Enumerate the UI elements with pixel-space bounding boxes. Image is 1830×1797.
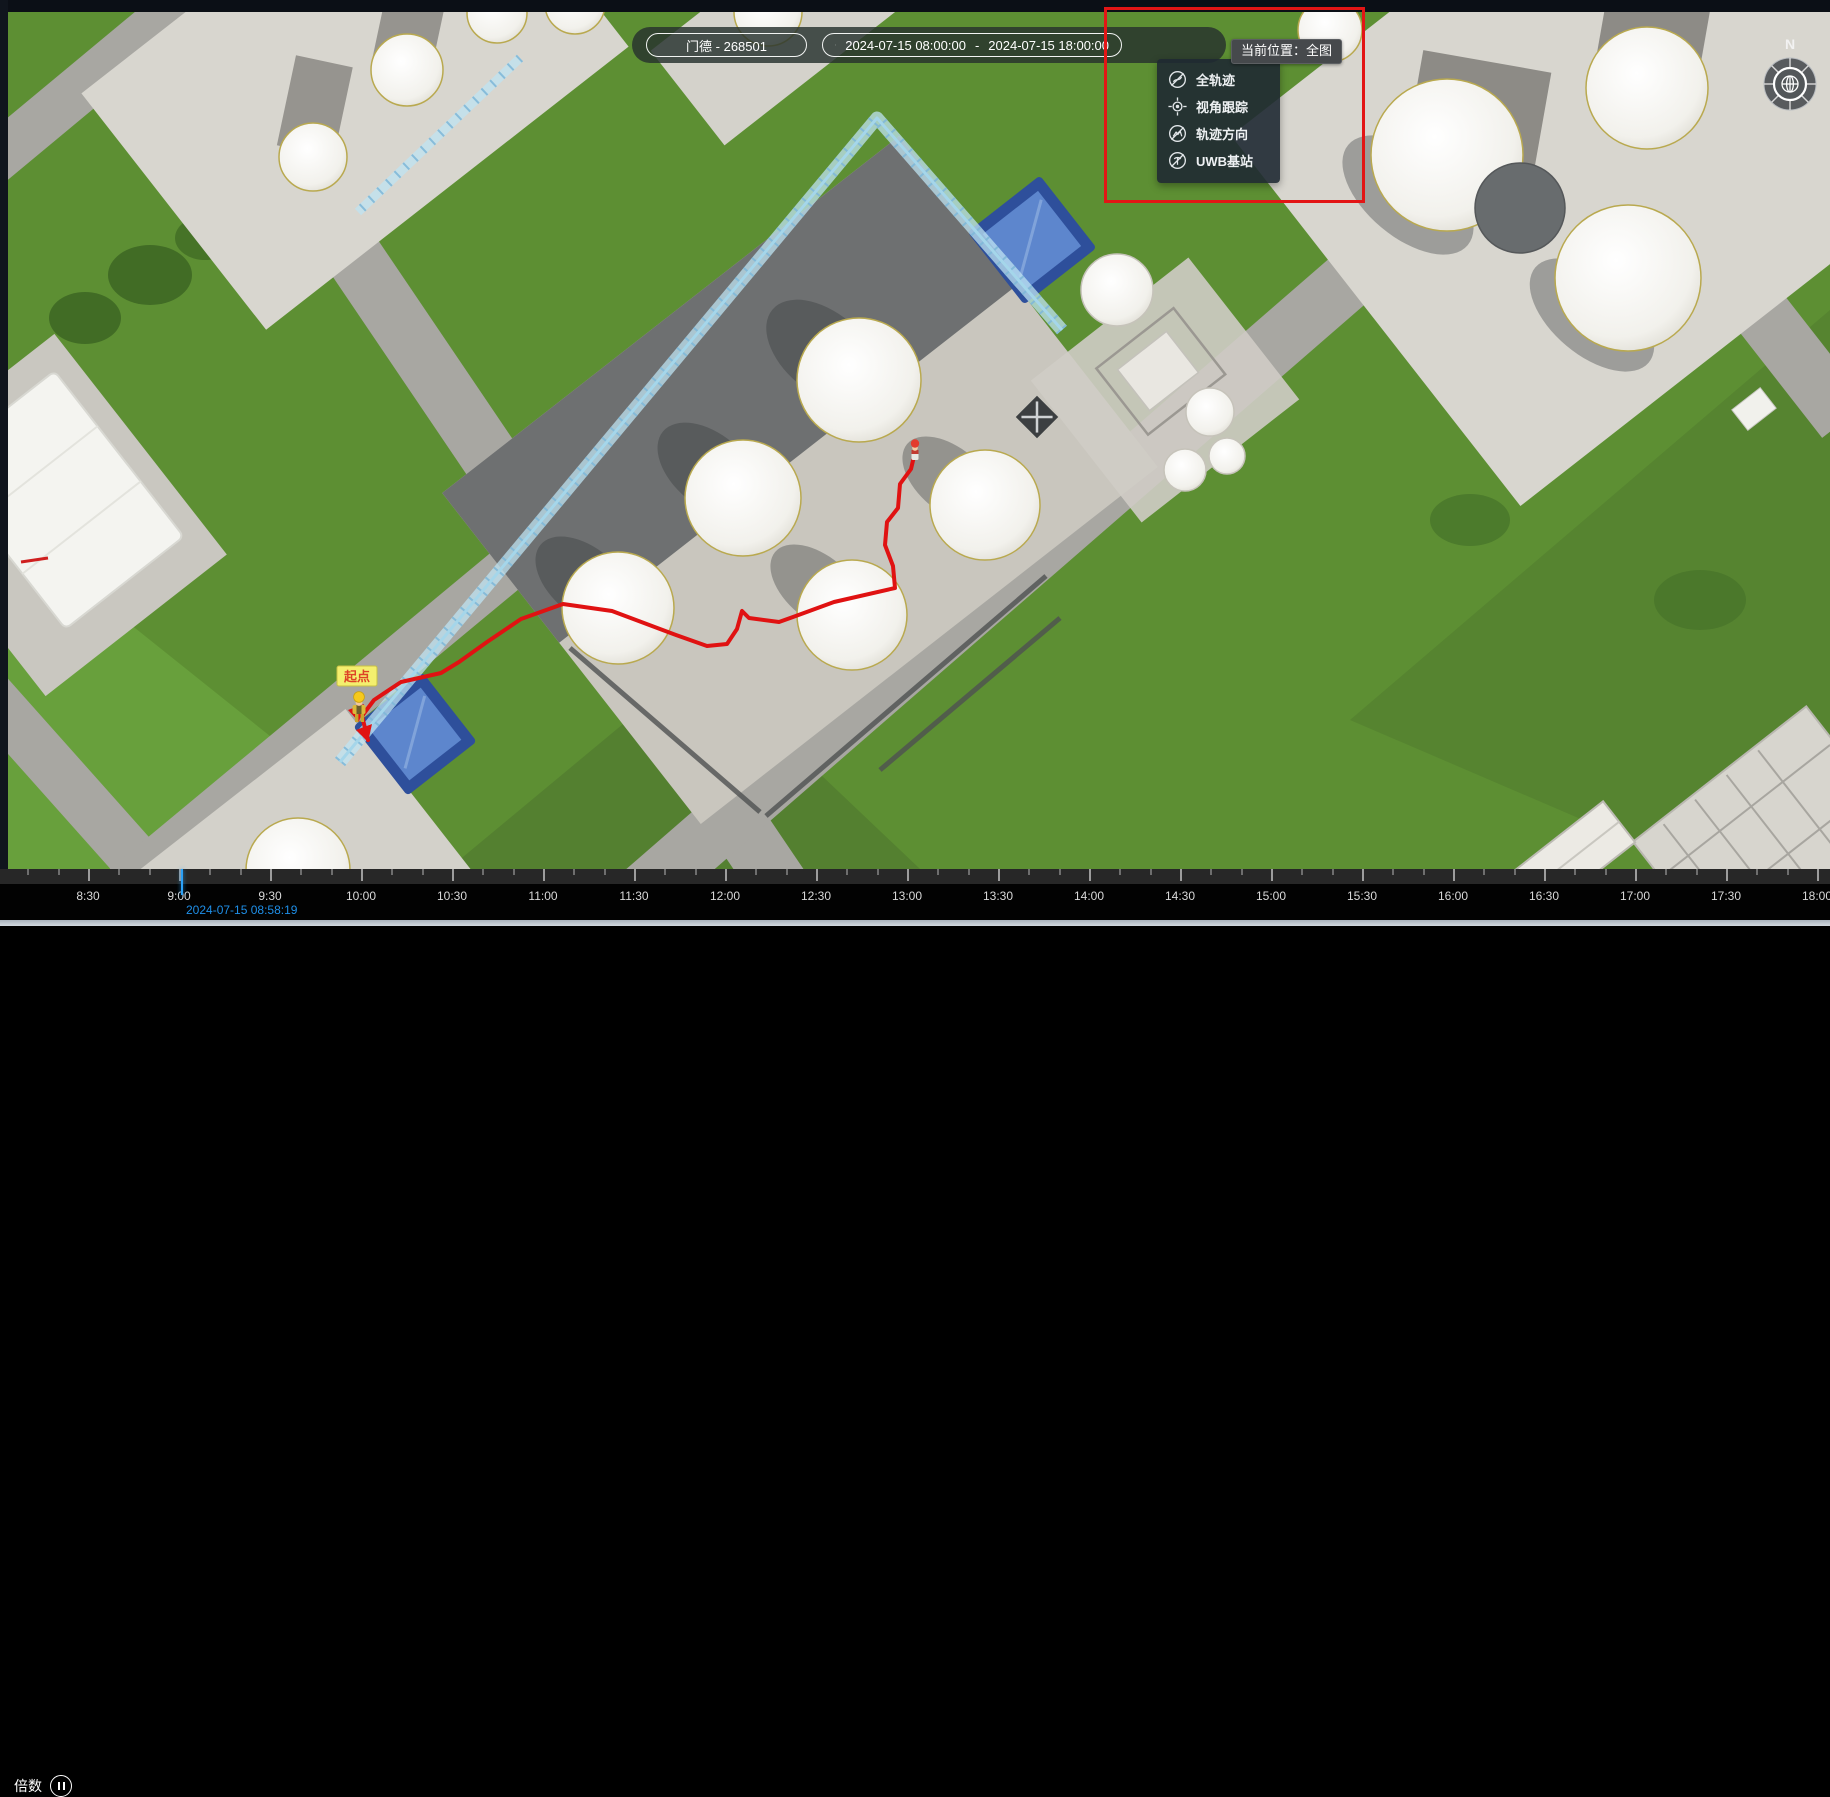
compass-north-label: N bbox=[1785, 36, 1795, 52]
timeline-minor-tick bbox=[1241, 869, 1243, 875]
uwb-station-icon bbox=[1167, 150, 1188, 171]
timeline-major-tick bbox=[1726, 869, 1728, 881]
full-trajectory-icon bbox=[1167, 69, 1188, 90]
timeline-major-tick bbox=[998, 869, 1000, 881]
bottom-edge-strip bbox=[0, 920, 1830, 926]
timeline-minor-tick bbox=[1605, 869, 1607, 875]
timeline-minor-tick bbox=[1483, 869, 1485, 875]
time-range-separator: - bbox=[975, 38, 979, 53]
timeline-minor-tick bbox=[391, 869, 393, 875]
timeline-minor-tick bbox=[1756, 869, 1758, 875]
compass[interactable]: N bbox=[1754, 32, 1826, 120]
menu-item-trajectory-direction[interactable]: 轨迹方向 bbox=[1157, 120, 1280, 147]
timeline-tick-label: 14:00 bbox=[1074, 889, 1104, 903]
timeline-major-tick bbox=[1544, 869, 1546, 881]
timeline-minor-tick bbox=[937, 869, 939, 875]
timeline-major-tick bbox=[270, 869, 272, 881]
timeline-minor-tick bbox=[331, 869, 333, 875]
map-3d-view[interactable]: 起点 bbox=[0, 0, 1830, 926]
timeline-major-tick bbox=[1089, 869, 1091, 881]
start-label: 起点 bbox=[343, 669, 370, 684]
timeline-tick-label: 15:00 bbox=[1256, 889, 1286, 903]
timeline-minor-tick bbox=[149, 869, 151, 875]
timeline-major-tick bbox=[1271, 869, 1273, 881]
timeline-minor-tick bbox=[1059, 869, 1061, 875]
timeline-tick-label: 13:00 bbox=[892, 889, 922, 903]
timeline-major-tick bbox=[907, 869, 909, 881]
timeline-major-tick bbox=[543, 869, 545, 881]
timeline-minor-tick bbox=[664, 869, 666, 875]
menu-item-label: UWB基站 bbox=[1196, 151, 1253, 170]
timeline-minor-tick bbox=[786, 869, 788, 875]
menu-item-label: 视角跟踪 bbox=[1196, 97, 1248, 116]
timeline-major-tick bbox=[634, 869, 636, 881]
timeline-minor-tick bbox=[573, 869, 575, 875]
timeline-major-tick bbox=[452, 869, 454, 881]
timeline-minor-tick bbox=[422, 869, 424, 875]
timeline-minor-tick bbox=[1514, 869, 1516, 875]
menu-item-label: 轨迹方向 bbox=[1196, 124, 1248, 143]
top-edge-strip bbox=[0, 0, 1830, 12]
timeline-minor-tick bbox=[209, 869, 211, 875]
view-follow-icon bbox=[1167, 96, 1188, 117]
pause-button[interactable] bbox=[50, 1775, 72, 1797]
current-position-tooltip: 当前位置：全图 bbox=[1231, 39, 1342, 64]
menu-item-full-trajectory[interactable]: 全轨迹 bbox=[1157, 66, 1280, 93]
timeline-major-tick bbox=[88, 869, 90, 881]
timeline-minor-tick bbox=[1119, 869, 1121, 875]
timeline-minor-tick bbox=[58, 869, 60, 875]
time-range-end: 2024-07-15 18:00:00 bbox=[988, 38, 1109, 53]
timeline-tick-label: 8:30 bbox=[76, 889, 99, 903]
toolbar: 门德 - 268501 2024-07-15 08:00:00 - 2024-0… bbox=[632, 27, 1226, 63]
timeline-tick-label: 16:30 bbox=[1529, 889, 1559, 903]
timeline-tick-label: 13:30 bbox=[983, 889, 1013, 903]
timeline-tick-label: 11:00 bbox=[528, 889, 557, 903]
person-select[interactable]: 门德 - 268501 bbox=[646, 33, 807, 57]
timeline-major-tick bbox=[1453, 869, 1455, 881]
timeline-minor-tick bbox=[846, 869, 848, 875]
timeline-minor-tick bbox=[755, 869, 757, 875]
person-select-value: 门德 - 268501 bbox=[686, 36, 767, 55]
timeline-minor-tick bbox=[1574, 869, 1576, 875]
timeline-minor-tick bbox=[513, 869, 515, 875]
timeline-major-tick bbox=[816, 869, 818, 881]
timeline-tick-label: 12:30 bbox=[801, 889, 831, 903]
timeline-major-tick bbox=[1635, 869, 1637, 881]
timeline-minor-tick bbox=[1028, 869, 1030, 875]
uwb-tracking-app: { "toolbar": { "person_select": { "value… bbox=[0, 0, 1830, 926]
timeline-minor-tick bbox=[695, 869, 697, 875]
timeline-tick-label: 17:00 bbox=[1620, 889, 1650, 903]
timeline-minor-tick bbox=[300, 869, 302, 875]
timeline-tick-label: 15:30 bbox=[1347, 889, 1377, 903]
menu-item-uwb-station[interactable]: UWB基站 bbox=[1157, 147, 1280, 174]
view-menu: 全轨迹 视角跟踪 轨迹方向 UWB基站 bbox=[1157, 59, 1280, 183]
speed-control: 倍数 bbox=[14, 1775, 72, 1797]
time-range-start: 2024-07-15 08:00:00 bbox=[845, 38, 966, 53]
timeline-playhead[interactable] bbox=[181, 869, 183, 895]
timeline-minor-tick bbox=[482, 869, 484, 875]
timeline-minor-tick bbox=[1150, 869, 1152, 875]
left-edge-strip bbox=[0, 0, 8, 869]
globe-icon bbox=[1782, 76, 1798, 92]
timeline-minor-tick bbox=[27, 869, 29, 875]
timeline-tick-label: 9:30 bbox=[258, 889, 281, 903]
timeline-minor-tick bbox=[604, 869, 606, 875]
timeline-tick-label: 9:00 bbox=[167, 889, 190, 903]
trajectory-direction-icon bbox=[1167, 123, 1188, 144]
timeline-tick-label: 16:00 bbox=[1438, 889, 1468, 903]
timeline-major-tick bbox=[1180, 869, 1182, 881]
time-range-picker[interactable]: 2024-07-15 08:00:00 - 2024-07-15 18:00:0… bbox=[822, 33, 1122, 57]
timeline-tick-label: 17:30 bbox=[1711, 889, 1741, 903]
timeline-minor-tick bbox=[1696, 869, 1698, 875]
timeline-minor-tick bbox=[1392, 869, 1394, 875]
timeline-minor-tick bbox=[1665, 869, 1667, 875]
current-time-label: 2024-07-15 08:58:19 bbox=[186, 903, 297, 917]
menu-item-label: 全轨迹 bbox=[1196, 70, 1235, 89]
timeline-major-tick bbox=[1362, 869, 1364, 881]
timeline-minor-tick bbox=[1423, 869, 1425, 875]
timeline-major-tick bbox=[361, 869, 363, 881]
speed-label: 倍数 bbox=[14, 1776, 42, 1796]
clock-icon bbox=[835, 36, 836, 54]
timeline-minor-tick bbox=[118, 869, 120, 875]
timeline-minor-tick bbox=[1787, 869, 1789, 875]
timeline-minor-tick bbox=[1332, 869, 1334, 875]
timeline-minor-tick bbox=[877, 869, 879, 875]
timeline-tick-label: 10:30 bbox=[437, 889, 467, 903]
timeline-ruler[interactable] bbox=[0, 869, 1830, 884]
timeline-major-tick bbox=[725, 869, 727, 881]
timeline-tick-label: 14:30 bbox=[1165, 889, 1195, 903]
timeline-tick-label: 12:00 bbox=[710, 889, 740, 903]
timeline-minor-tick bbox=[240, 869, 242, 875]
timeline-tick-label: 11:30 bbox=[619, 889, 648, 903]
timeline-minor-tick bbox=[968, 869, 970, 875]
timeline-tick-label: 18:00 bbox=[1802, 889, 1830, 903]
timeline-tick-label: 10:00 bbox=[346, 889, 376, 903]
timeline-minor-tick bbox=[1210, 869, 1212, 875]
timeline-major-tick bbox=[1817, 869, 1819, 881]
timeline-minor-tick bbox=[1301, 869, 1303, 875]
menu-item-view-follow[interactable]: 视角跟踪 bbox=[1157, 93, 1280, 120]
